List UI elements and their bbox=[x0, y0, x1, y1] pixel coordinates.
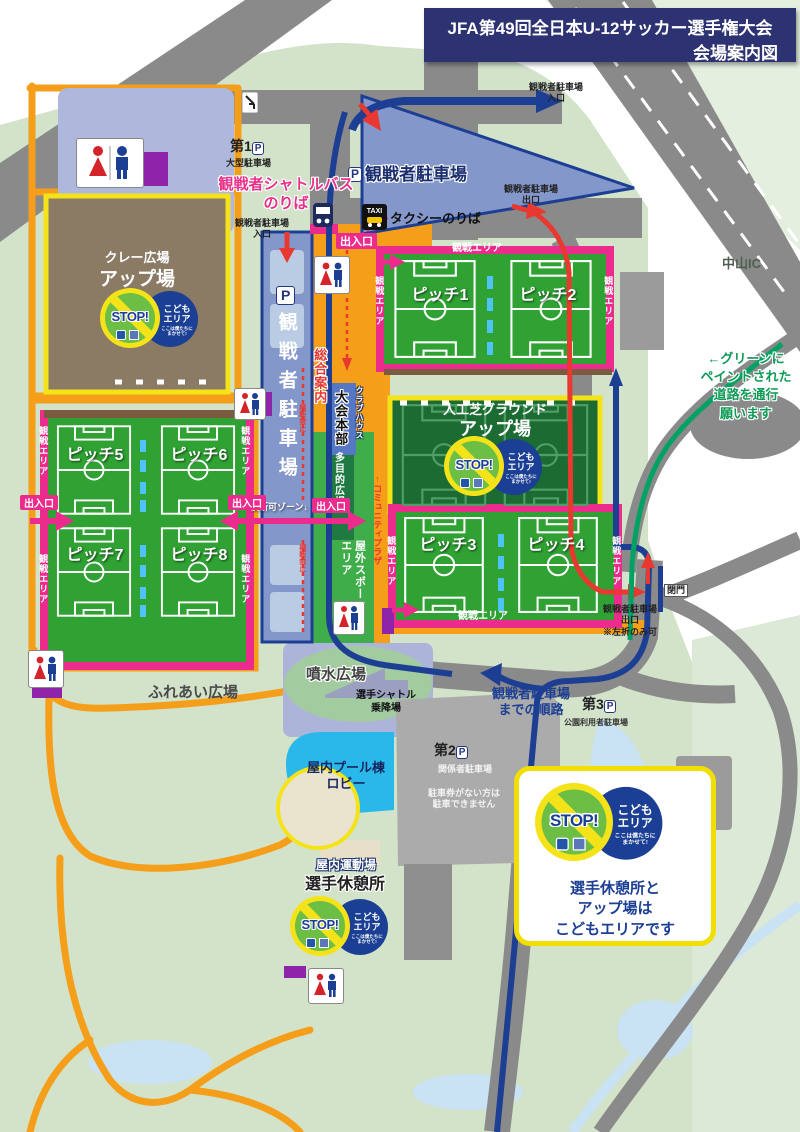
pitch-5-label: ピッチ5 bbox=[60, 446, 130, 466]
fountain-plaza-label: 噴水広場 bbox=[306, 666, 366, 685]
title-line2: 会場案内図 bbox=[424, 39, 796, 64]
pitch-1-label: ピッチ1 bbox=[404, 286, 476, 306]
clubhouse-label: クラブハウス bbox=[354, 386, 364, 454]
taxi-icon: TAXI bbox=[362, 204, 387, 235]
rest-area-label: 選手休憩所 bbox=[290, 875, 400, 895]
closed-gate-label: 閉門 bbox=[664, 584, 688, 597]
toilet-icon bbox=[314, 256, 350, 294]
pitch-6-label: ピッチ6 bbox=[164, 446, 234, 466]
shuttle-bus-stop-label: 観戦者シャトルバス のりば bbox=[180, 176, 392, 214]
parking-p-icon: P bbox=[456, 746, 469, 759]
route-note-label: 観戦者駐車場 までの順路 bbox=[472, 686, 590, 719]
partner-logo-icon bbox=[473, 478, 483, 488]
taxi-icon-text: TAXI bbox=[367, 208, 382, 215]
jfa-logo-icon bbox=[116, 330, 126, 340]
pitch-3-label: ピッチ3 bbox=[412, 536, 484, 556]
gate-badge-mid: 出入口 bbox=[228, 495, 266, 510]
stop-circle: STOP! bbox=[444, 436, 504, 496]
legend-note: 選手休憩所と アップ場は こどもエリアです bbox=[519, 879, 711, 940]
clay-ground-name: クレー広場 bbox=[80, 250, 194, 266]
parking-entrance-label-top: 観戦者駐車場 入口 bbox=[518, 82, 594, 105]
spectate-area-label: 観戦エリア bbox=[452, 243, 502, 256]
jfa-logo-icon bbox=[306, 938, 316, 948]
kids-area-legend: こども エリアここは僕たちに まかせて! STOP! 選手休憩所と アップ場は … bbox=[514, 766, 716, 946]
venue-map: JFA第49回全日本U-12サッカー選手権大会 会場案内図 中山IC ←グリーン… bbox=[0, 0, 800, 1132]
community-plaza-label: ↑コミュニティプラザ bbox=[371, 474, 382, 614]
slope-sign-icon bbox=[242, 92, 258, 118]
green-road-note: ←グリーンに ペイントされた 道路を通行 願います bbox=[694, 350, 798, 423]
spectate-area-label: 観戦エリア bbox=[37, 554, 48, 618]
jfa-logo-icon bbox=[460, 478, 470, 488]
multi-plaza-label: 多目的広場 bbox=[331, 452, 344, 538]
spectate-area-label: 観戦エリア bbox=[373, 276, 384, 340]
parking-p-icon: P bbox=[252, 142, 265, 155]
gate-badge-right: 出入口 bbox=[312, 498, 350, 513]
toilet-icon bbox=[308, 968, 344, 1004]
parking1-sub: 大型駐車場 bbox=[226, 158, 271, 169]
parking3-sub: 公園利用者駐車場 bbox=[564, 718, 628, 728]
stop-circle: STOP! bbox=[535, 783, 613, 861]
toilet-icon bbox=[333, 601, 365, 635]
strip-parking-label: 観戦者駐車場 bbox=[274, 312, 298, 612]
stop-circle: STOP! bbox=[290, 896, 350, 956]
info-desk-label: 総合案内 bbox=[311, 348, 327, 424]
parking2-note: 駐車券がない方は 駐車できません bbox=[414, 788, 514, 811]
spectate-area-label: 観戦エリア bbox=[37, 426, 48, 490]
spectate-area-label: 観戦エリア bbox=[239, 426, 250, 490]
turf-ground-name: 人工芝グラウンド bbox=[428, 402, 562, 418]
pool-lobby-label: 屋内プール棟 ロビー bbox=[296, 760, 396, 793]
parking2-label: 第2P bbox=[434, 742, 468, 760]
parking-exit-label-top: 観戦者駐車場 出口 bbox=[498, 184, 564, 207]
spectate-area-label: 観戦エリア bbox=[239, 554, 250, 618]
gate-badge-left: 出入口 bbox=[20, 495, 58, 510]
spectate-area-label: 観戦エリア bbox=[602, 276, 613, 340]
spectate-area-label: 観戦エリア bbox=[458, 611, 508, 624]
pitch-4-label: ピッチ4 bbox=[520, 536, 592, 556]
fureai-plaza-label: ふれあい広場 bbox=[148, 684, 238, 703]
toilet-icon bbox=[234, 388, 266, 420]
stop-circle: STOP! bbox=[100, 288, 160, 348]
parking1-name: 第1 bbox=[230, 138, 252, 154]
indoor-gym-label: 屋内運動場 bbox=[298, 858, 394, 873]
parking-exit-left-only-label: 観戦者駐車場 出口 ※左折のみ可 bbox=[590, 604, 670, 638]
jfa-logo-icon bbox=[556, 838, 569, 851]
partner-logo-icon bbox=[129, 330, 139, 340]
title-line1: JFA第49回全日本U-12サッカー選手権大会 bbox=[424, 14, 796, 39]
parking2-sub: 関係者駐車場 bbox=[420, 764, 510, 775]
route-note-arrow: ↑ bbox=[490, 668, 497, 686]
toilet-icon bbox=[28, 650, 64, 688]
stop-kids-area-sign: こども エリアここは僕たちに まかせて! STOP! bbox=[290, 896, 390, 958]
stop-kids-area-sign: こども エリアここは僕たちに まかせて! STOP! bbox=[100, 288, 200, 350]
parking-entrance-label-strip: 観戦者駐車場 入口 bbox=[224, 218, 300, 241]
pitch-7-label: ピッチ7 bbox=[60, 546, 130, 566]
no-cross-label: 横断禁止 bbox=[297, 404, 306, 446]
player-shuttle-label: 選手シャトル 乗降場 bbox=[348, 690, 424, 715]
nakayama-ic-label: 中山IC bbox=[722, 256, 761, 272]
bus-icon bbox=[312, 202, 334, 233]
pitch-2-label: ピッチ2 bbox=[512, 286, 584, 306]
strip-p-icon: P bbox=[276, 286, 295, 305]
partner-logo-icon bbox=[319, 938, 329, 948]
taxi-stand-label: タクシーのりば bbox=[390, 211, 481, 227]
parking-p-icon: P bbox=[604, 700, 617, 713]
toilet-icon bbox=[76, 138, 144, 188]
stop-kids-area-sign: こども エリアここは僕たちに まかせて! STOP! bbox=[535, 783, 665, 864]
spectate-area-label: 観戦エリア bbox=[385, 536, 396, 600]
gate-badge-top: 出入口 bbox=[336, 233, 377, 249]
partner-logo-icon bbox=[573, 838, 586, 851]
parking2-name: 第2 bbox=[434, 742, 456, 758]
page-title: JFA第49回全日本U-12サッカー選手権大会 会場案内図 bbox=[424, 8, 796, 62]
parking1-label: 第1P bbox=[230, 138, 264, 156]
spectate-area-label: 観戦エリア bbox=[610, 536, 621, 600]
pitch-8-label: ピッチ8 bbox=[164, 546, 234, 566]
stop-kids-area-sign: こども エリアここは僕たちに まかせて! STOP! bbox=[444, 436, 544, 498]
no-cross-label: 横断禁止 bbox=[297, 544, 306, 586]
